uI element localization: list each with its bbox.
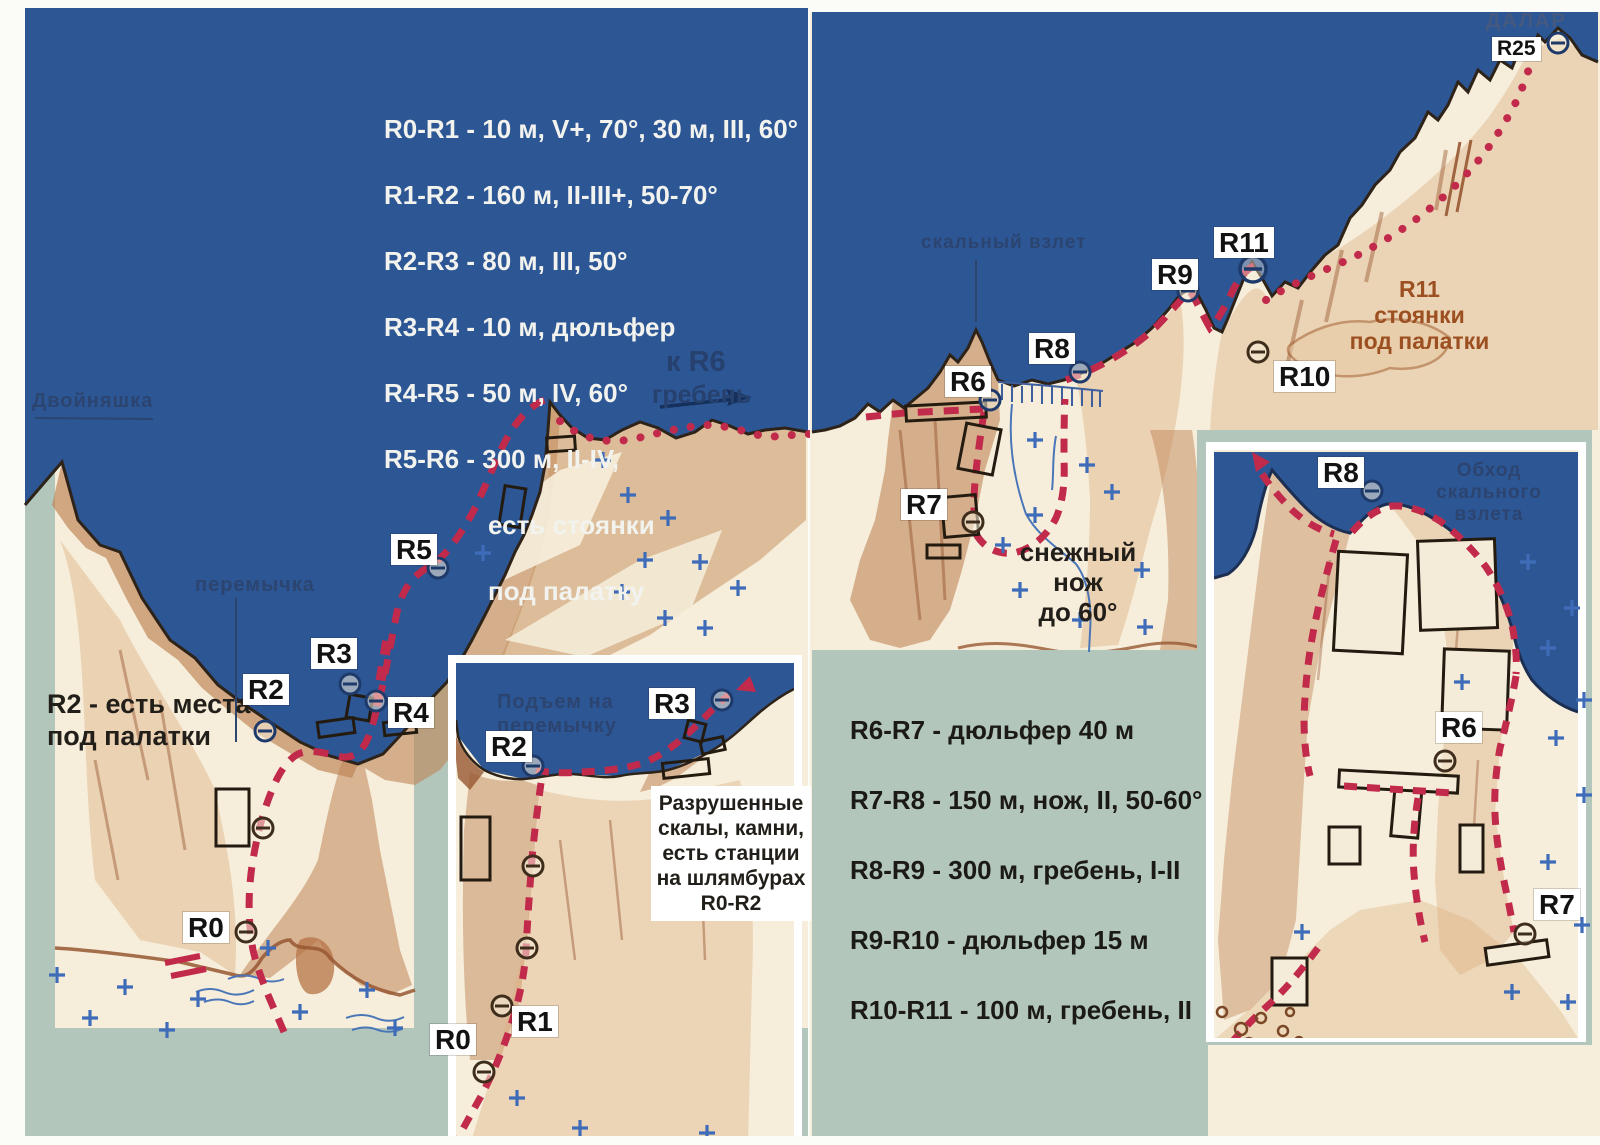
belay-icon (366, 691, 386, 711)
marker-r3: R3 (311, 638, 357, 669)
inset2-marker-r6: R6 (1436, 712, 1482, 743)
legend-line: R5-R6 - 300 м, II-IV, (384, 443, 798, 476)
legend-line: R2-R3 - 80 м, III, 50° (384, 245, 798, 278)
belay-icon (1435, 751, 1455, 771)
belay-icon (963, 512, 983, 532)
belay-icon (474, 1062, 494, 1082)
belay-icon (1515, 924, 1535, 944)
marker-r10: R10 (1274, 361, 1335, 392)
belay-icon (253, 818, 273, 838)
belay-icon (1548, 33, 1568, 53)
marker-r4: R4 (388, 697, 434, 728)
belay-icon (255, 721, 275, 741)
legend-line: под палатку (488, 575, 798, 608)
note-r2-tents: R2 - есть места под палатки (47, 688, 250, 752)
marker-r25: R25 (1492, 37, 1541, 61)
label-greben: гребень (652, 381, 751, 410)
label-k-r6: к R6 (666, 346, 726, 379)
pitch-legend-left: R0-R1 - 10 м, V+, 70°, 30 м, III, 60° R1… (384, 80, 798, 641)
marker-r6: R6 (945, 366, 991, 397)
belay-icon (1362, 481, 1382, 501)
belay-icon (712, 690, 732, 710)
belay-icon (1070, 362, 1090, 382)
summit-label-dalar: ДАЛАР (1486, 10, 1567, 33)
pitch-legend-right: R6-R7 - дюльфер 40 м R7-R8 - 150 м, нож,… (850, 678, 1202, 1063)
marker-r9: R9 (1152, 259, 1198, 290)
belay-icon (523, 856, 543, 876)
inset1-marker-r1: R1 (512, 1006, 558, 1037)
belay-icon (1240, 256, 1266, 282)
inset1-marker-r2: R2 (486, 731, 532, 762)
marker-r0: R0 (183, 912, 229, 943)
marker-r11: R11 (1214, 227, 1274, 258)
topo-artwork (0, 0, 1600, 1145)
note-r11-tents: R11 стоянки под палатки (1342, 276, 1497, 354)
saddle-label-peremychka: перемычка (195, 574, 315, 597)
marker-r8: R8 (1029, 333, 1075, 364)
inset1-marker-r3: R3 (649, 688, 695, 719)
inset1-note: Разрушенные скалы, камни, есть станции н… (651, 786, 811, 921)
peak-label-dvoynyashka: Двойняшка (32, 390, 153, 413)
label-skalny-vzlet: скальный взлет (921, 232, 1086, 254)
inset2-marker-r7: R7 (1534, 889, 1580, 920)
inset2-marker-r8: R8 (1318, 457, 1364, 488)
legend-line: R8-R9 - 300 м, гребень, I-II (850, 853, 1202, 888)
inset1-marker-r0: R0 (430, 1024, 476, 1055)
legend-line: R10-R11 - 100 м, гребень, II (850, 993, 1202, 1028)
belay-icon (517, 938, 537, 958)
belay-icon (236, 922, 256, 942)
note-snow-knife: снежный нож до 60° (993, 537, 1163, 627)
legend-line: R9-R10 - дюльфер 15 м (850, 923, 1202, 958)
belay-icon (1248, 342, 1268, 362)
legend-line: R0-R1 - 10 м, V+, 70°, 30 м, III, 60° (384, 113, 798, 146)
inset2-title: Обход скального взлета (1414, 460, 1564, 526)
marker-r2: R2 (243, 674, 289, 705)
legend-line: есть стоянки (488, 509, 798, 542)
marker-r7: R7 (901, 489, 947, 520)
belay-icon (340, 674, 360, 694)
marker-r5: R5 (391, 534, 437, 565)
legend-line: R6-R7 - дюльфер 40 м (850, 713, 1202, 748)
climbing-topo-scan: R0-R1 - 10 м, V+, 70°, 30 м, III, 60° R1… (0, 0, 1600, 1145)
legend-line: R3-R4 - 10 м, дюльфер (384, 311, 798, 344)
legend-line: R7-R8 - 150 м, нож, II, 50-60° (850, 783, 1202, 818)
legend-line: R1-R2 - 160 м, II-III+, 50-70° (384, 179, 798, 212)
belay-icon (492, 996, 512, 1016)
